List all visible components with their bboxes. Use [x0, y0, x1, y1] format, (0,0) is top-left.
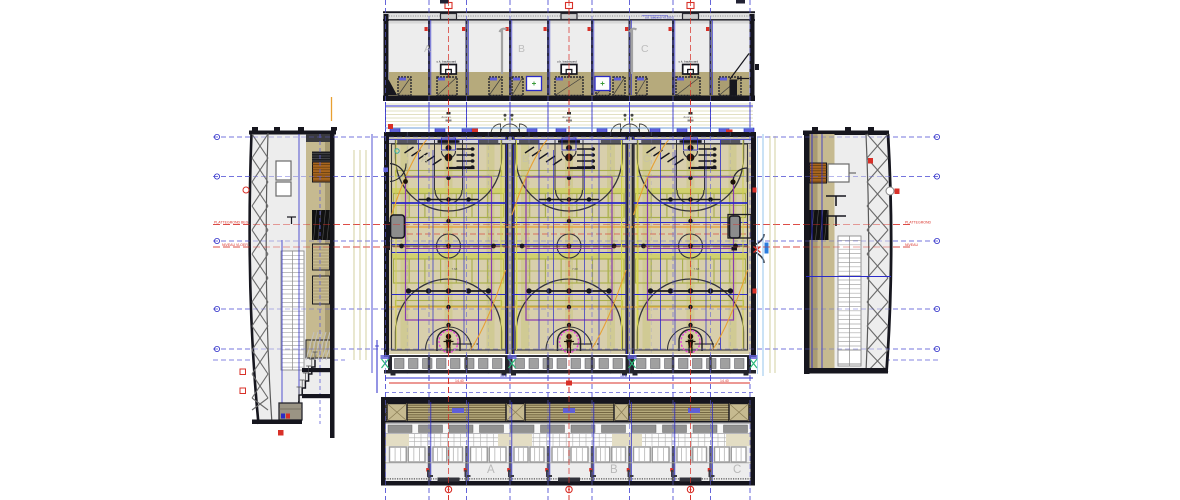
svg-text:PLATTEGROND: PLATTEGROND	[905, 221, 931, 225]
svg-text:7.68: 7.68	[572, 267, 578, 271]
svg-text:NIVEAU: NIVEAU	[905, 243, 919, 247]
svg-text:o.k. backboard: o.k. backboard	[679, 60, 699, 64]
svg-text:doorsn.: doorsn.	[684, 115, 694, 119]
svg-text:14.40: 14.40	[720, 379, 729, 383]
svg-text:B: B	[610, 464, 618, 476]
svg-text:10.8: 10.8	[500, 374, 507, 378]
svg-text:10.8: 10.8	[620, 374, 627, 378]
svg-text:o.k. backboard: o.k. backboard	[437, 60, 457, 64]
svg-text:o.k. backboard: o.k. backboard	[557, 60, 577, 64]
svg-text:7.68: 7.68	[452, 267, 458, 271]
svg-text:B: B	[522, 154, 529, 165]
svg-text:C: C	[641, 43, 649, 55]
svg-text:NIVEAU VLOER: NIVEAU VLOER	[222, 243, 248, 247]
svg-text:A: A	[421, 154, 428, 165]
svg-text:A: A	[424, 43, 431, 55]
svg-text:B: B	[518, 43, 525, 55]
svg-text:C: C	[733, 464, 741, 476]
svg-text:C: C	[643, 154, 650, 165]
svg-text:A: A	[487, 464, 495, 476]
svg-text:doorsn.: doorsn.	[562, 115, 572, 119]
svg-text:doorsn.: doorsn.	[442, 115, 452, 119]
svg-text:7.68: 7.68	[694, 267, 700, 271]
svg-text:14.40: 14.40	[455, 379, 464, 383]
